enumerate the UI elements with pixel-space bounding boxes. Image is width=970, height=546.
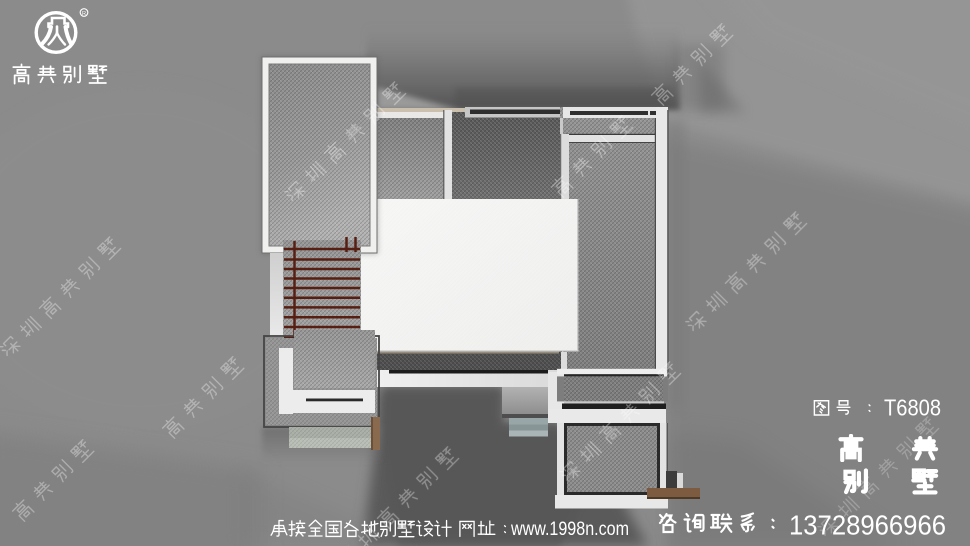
svg-text:www.1998n.com: www.1998n.com bbox=[510, 518, 629, 540]
svg-text:T6808: T6808 bbox=[884, 395, 941, 421]
svg-text:R: R bbox=[82, 11, 86, 17]
svg-text:13728966966: 13728966966 bbox=[789, 510, 946, 541]
